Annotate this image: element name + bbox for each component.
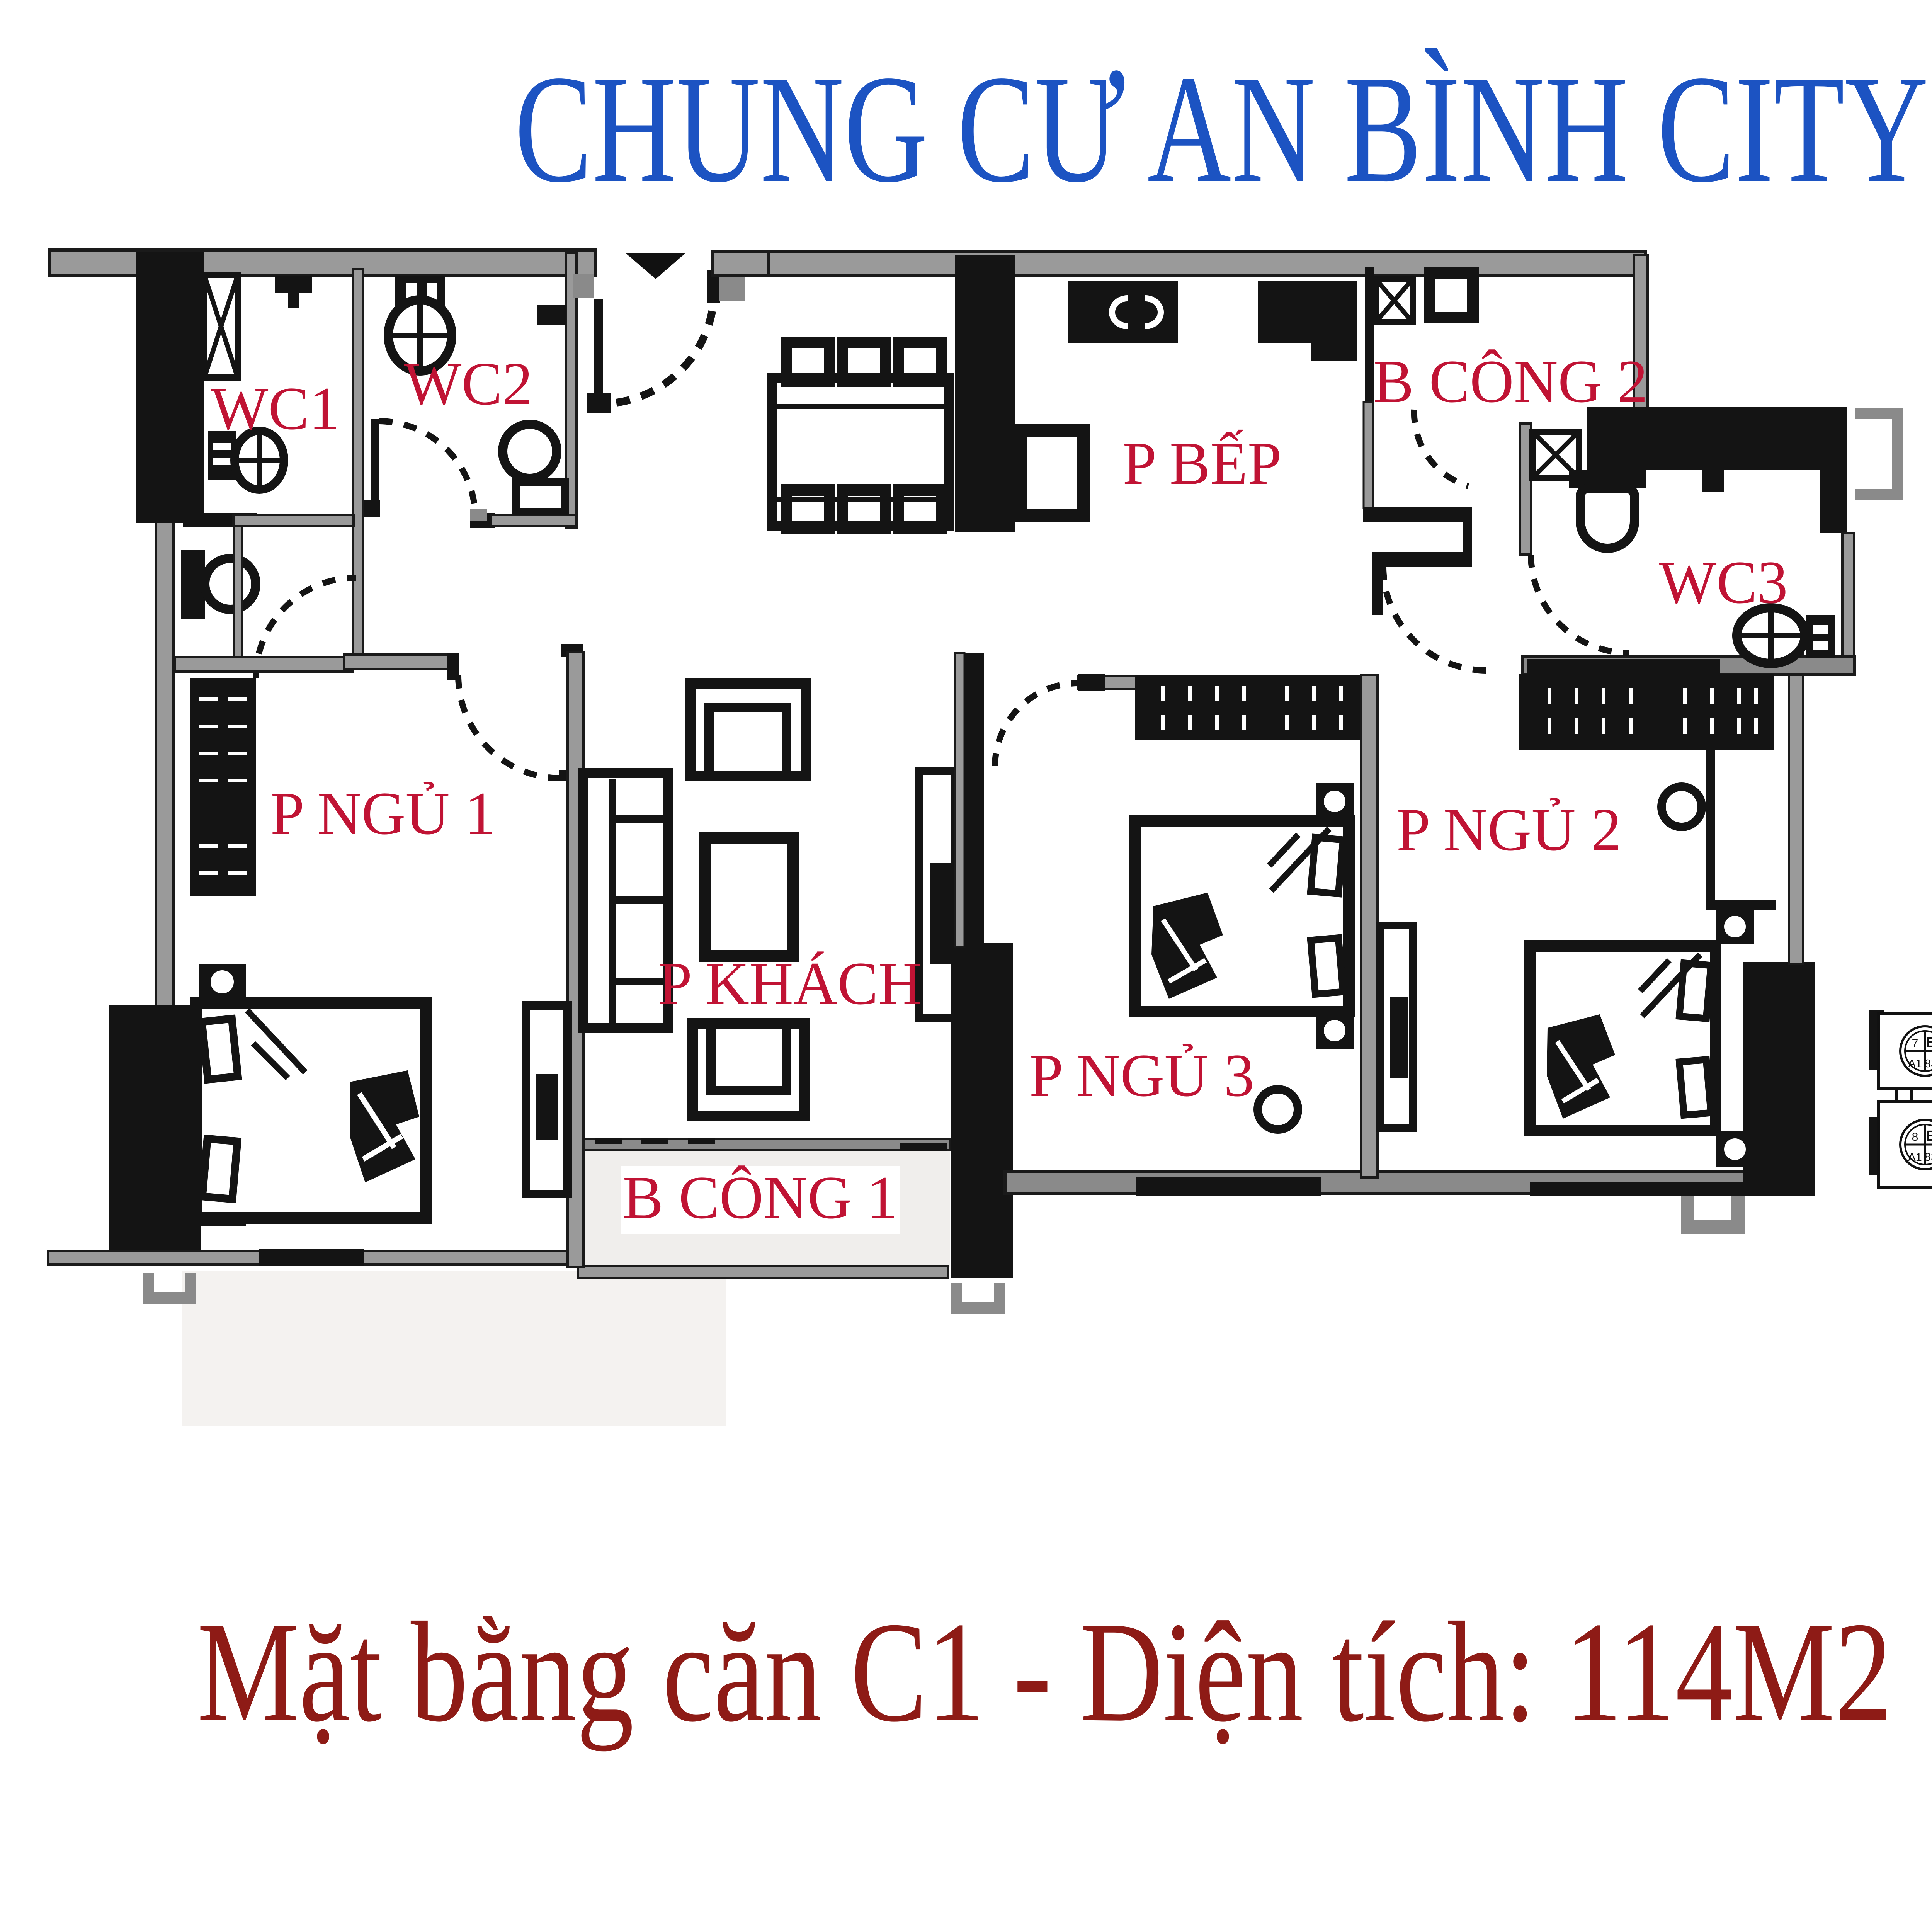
svg-text:P NGỦ 2: P NGỦ 2: [1396, 796, 1621, 864]
svg-text:B3: B3: [1926, 1034, 1932, 1051]
svg-text:B4: B4: [1926, 1128, 1932, 1144]
svg-text:WC1: WC1: [211, 375, 340, 442]
svg-text:83.7: 83.7: [1925, 1151, 1932, 1163]
svg-text:7: 7: [1912, 1037, 1918, 1050]
svg-text:P NGỦ 3: P NGỦ 3: [1029, 1042, 1254, 1109]
svg-text:P NGỦ 1: P NGỦ 1: [270, 780, 495, 847]
svg-text:B CÔNG 2: B CÔNG 2: [1373, 348, 1648, 415]
svg-text:A1: A1: [1908, 1058, 1922, 1070]
svg-text:P KHÁCH: P KHÁCH: [658, 950, 922, 1017]
svg-text:Mặt bằng căn C1 - Diện tích: 1: Mặt bằng căn C1 - Diện tích: 114M2: [197, 1593, 1892, 1752]
svg-text:B CÔNG 1: B CÔNG 1: [622, 1164, 897, 1232]
svg-text:83.7: 83.7: [1925, 1058, 1932, 1070]
svg-text:8: 8: [1912, 1131, 1918, 1143]
svg-text:WC3: WC3: [1659, 549, 1788, 616]
svg-text:P BẾP: P BẾP: [1122, 429, 1281, 497]
svg-text:A1: A1: [1908, 1151, 1922, 1163]
svg-text:WC2: WC2: [404, 350, 533, 418]
svg-text:CHUNG CƯ AN BÌNH CITY: CHUNG CƯ AN BÌNH CITY: [515, 43, 1929, 214]
